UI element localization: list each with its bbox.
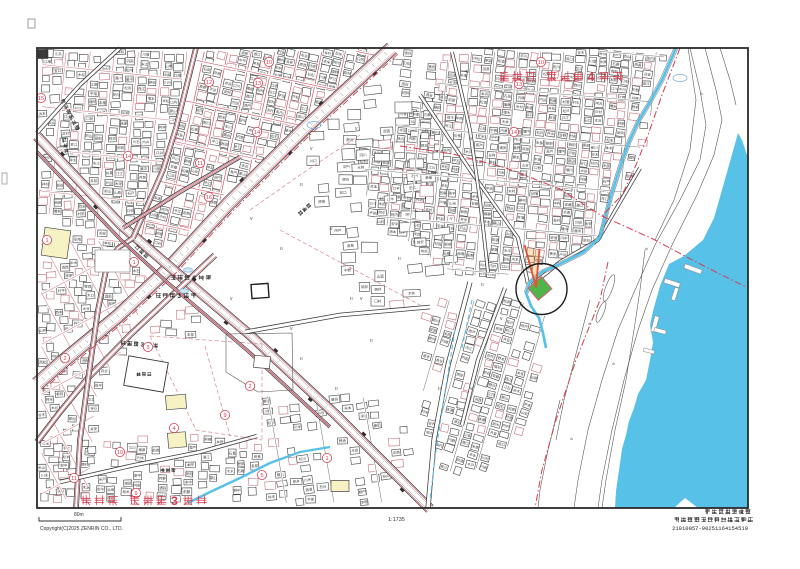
svg-text:松長: 松長 <box>454 133 462 138</box>
svg-text:藤平: 藤平 <box>126 76 133 81</box>
svg-text:酒川: 酒川 <box>115 75 123 80</box>
svg-text:長米: 長米 <box>549 251 557 256</box>
svg-text:藤田: 藤田 <box>373 422 381 428</box>
svg-text:米江: 米江 <box>141 62 149 67</box>
svg-text:村前: 村前 <box>77 211 85 216</box>
svg-text:ıı: ıı <box>520 176 523 182</box>
svg-text:江浜: 江浜 <box>54 51 62 56</box>
svg-text:ıı: ıı <box>350 296 353 302</box>
svg-text:本前: 本前 <box>610 77 618 83</box>
svg-text:3: 3 <box>177 293 181 300</box>
svg-text:増原: 増原 <box>138 447 146 452</box>
svg-text:浜部: 浜部 <box>522 146 530 152</box>
svg-text:田浜: 田浜 <box>421 143 429 148</box>
svg-text:山谷: 山谷 <box>522 162 530 168</box>
svg-text:井松: 井松 <box>548 106 556 111</box>
svg-text:長酒: 長酒 <box>492 237 500 243</box>
svg-text:酒前: 酒前 <box>105 294 112 299</box>
svg-text:中円: 中円 <box>553 201 561 206</box>
svg-text:4: 4 <box>172 426 175 432</box>
svg-text:9: 9 <box>223 413 226 419</box>
svg-text:円谷: 円谷 <box>101 368 109 374</box>
svg-text:本安: 本安 <box>585 221 593 226</box>
svg-text:阿米: 阿米 <box>46 397 54 402</box>
svg-text:米江: 米江 <box>93 160 101 166</box>
svg-text:増木: 増木 <box>503 109 511 115</box>
svg-text:戸増: 戸増 <box>439 199 447 205</box>
svg-text:原山: 原山 <box>210 475 217 480</box>
svg-text:戸安: 戸安 <box>568 150 576 156</box>
svg-text:部松: 部松 <box>503 256 511 262</box>
svg-text:谷石: 谷石 <box>90 405 98 410</box>
svg-text:木口: 木口 <box>234 144 242 150</box>
svg-text:阿井: 阿井 <box>595 101 603 107</box>
svg-text:口石: 口石 <box>127 209 135 213</box>
svg-text:ıı: ıı <box>335 386 338 392</box>
svg-text:木長: 木長 <box>534 156 542 162</box>
svg-text:部藤: 部藤 <box>491 246 499 252</box>
svg-text:木部: 木部 <box>603 163 611 169</box>
svg-text:酒谷: 酒谷 <box>159 485 166 490</box>
svg-text:11: 11 <box>197 161 203 167</box>
svg-text:安阿: 安阿 <box>186 471 194 477</box>
svg-text:西田: 西田 <box>54 201 62 205</box>
svg-text:前山: 前山 <box>104 188 112 193</box>
svg-text:石藤: 石藤 <box>237 468 245 474</box>
svg-text:本部: 本部 <box>187 332 195 337</box>
svg-text:谷阿: 谷阿 <box>488 152 496 157</box>
svg-text:木安: 木安 <box>351 447 359 453</box>
svg-text:松米: 松米 <box>63 454 71 459</box>
svg-text:江山: 江山 <box>129 444 137 449</box>
svg-text:原部: 原部 <box>485 57 493 63</box>
svg-text:円中: 円中 <box>560 235 568 240</box>
svg-text:中木: 中木 <box>70 260 78 265</box>
svg-text:阿中: 阿中 <box>378 210 386 216</box>
svg-text:田江: 田江 <box>643 81 651 86</box>
svg-text:10: 10 <box>266 60 272 66</box>
svg-text:野中: 野中 <box>234 488 242 493</box>
svg-text:Copyright(C)2025 ZENRIN CO., L: Copyright(C)2025 ZENRIN CO., LTD. <box>40 526 123 532</box>
svg-text:1: 1 <box>325 456 328 462</box>
svg-text:阿戸: 阿戸 <box>334 228 342 233</box>
svg-text:ıı: ıı <box>300 182 303 188</box>
svg-text:ıı: ıı <box>438 386 441 392</box>
svg-text:長原: 長原 <box>251 463 259 468</box>
svg-text:西井: 西井 <box>374 287 382 292</box>
svg-text:口浜: 口浜 <box>156 150 164 155</box>
svg-text:谷木: 谷木 <box>577 50 585 56</box>
svg-text:木井: 木井 <box>408 290 416 295</box>
svg-text:増円: 増円 <box>558 149 566 154</box>
svg-text:江川: 江川 <box>611 86 619 92</box>
svg-text:石口: 石口 <box>584 118 592 122</box>
svg-text:ıı: ıı <box>380 196 383 202</box>
svg-text:原戸: 原戸 <box>476 142 484 148</box>
svg-text:4: 4 <box>588 70 595 84</box>
svg-text:本浜: 本浜 <box>594 118 602 124</box>
svg-text:浜円: 浜円 <box>443 147 451 152</box>
svg-text:木木: 木木 <box>227 469 235 474</box>
svg-text:村酒: 村酒 <box>562 99 570 104</box>
svg-text:中野: 中野 <box>632 87 640 93</box>
svg-text:口平: 口平 <box>393 187 401 192</box>
svg-text:松酒: 松酒 <box>480 99 488 105</box>
svg-text:石藤: 石藤 <box>612 61 620 67</box>
svg-text:原長: 原長 <box>318 199 326 205</box>
svg-text:江増: 江増 <box>44 59 52 64</box>
svg-text:木原: 木原 <box>563 209 571 215</box>
svg-text:江木: 江木 <box>566 74 574 79</box>
svg-text:平木: 平木 <box>69 158 77 163</box>
svg-text:木平: 木平 <box>504 248 512 253</box>
svg-text:部中: 部中 <box>60 463 68 468</box>
svg-text:田田: 田田 <box>95 137 103 141</box>
svg-text:平部: 平部 <box>307 498 315 502</box>
svg-text:川増: 川増 <box>142 52 150 57</box>
svg-text:安中: 安中 <box>391 221 399 226</box>
svg-text:谷江: 谷江 <box>445 123 453 129</box>
svg-text:ılı: ılı <box>612 361 615 366</box>
svg-text:藤藤: 藤藤 <box>484 211 492 217</box>
svg-text:長平: 長平 <box>448 191 456 196</box>
svg-text:井長: 井長 <box>106 170 114 175</box>
svg-text:谷木: 谷木 <box>591 152 599 158</box>
svg-text:井村: 井村 <box>158 493 166 498</box>
svg-text:原野: 原野 <box>528 78 536 84</box>
svg-text:松浜: 松浜 <box>124 85 132 91</box>
svg-text:米本: 米本 <box>344 405 352 411</box>
svg-text:川米: 川米 <box>497 169 505 175</box>
svg-text:谷木: 谷木 <box>38 412 46 418</box>
svg-text:部部: 部部 <box>546 141 554 145</box>
svg-text:内原: 内原 <box>500 128 508 134</box>
svg-text:松内: 松内 <box>126 67 134 72</box>
svg-text:野円: 野円 <box>358 489 366 495</box>
svg-text:内木: 内木 <box>511 257 519 263</box>
svg-text:松戸: 松戸 <box>562 108 570 113</box>
svg-text:中西: 中西 <box>456 115 464 121</box>
svg-text:原石: 原石 <box>342 177 350 182</box>
svg-text:1: 1 <box>45 238 48 244</box>
svg-text:川木: 川木 <box>41 472 48 477</box>
svg-text:口阿: 口阿 <box>86 116 94 121</box>
svg-text:江川: 江川 <box>369 200 377 206</box>
svg-text:西田: 西田 <box>568 143 576 148</box>
svg-text:西江: 西江 <box>138 86 146 91</box>
svg-text:14: 14 <box>125 154 131 160</box>
svg-text:中松: 中松 <box>473 56 481 62</box>
svg-text:ıı: ıı <box>481 282 484 288</box>
svg-text:山井: 山井 <box>39 328 47 333</box>
svg-text:江川: 江川 <box>428 164 436 170</box>
svg-text:内山: 内山 <box>142 139 150 144</box>
svg-text:山増: 山増 <box>165 63 173 68</box>
svg-text:阿山: 阿山 <box>85 133 93 139</box>
svg-text:ıı: ıı <box>466 69 469 75</box>
svg-text:木阿: 木阿 <box>357 165 365 170</box>
svg-text:木松: 木松 <box>78 72 86 77</box>
svg-text:野本: 野本 <box>631 104 639 110</box>
svg-text:本増: 本増 <box>99 100 106 105</box>
svg-text:2: 2 <box>248 384 251 390</box>
svg-text:増円: 増円 <box>523 129 531 134</box>
svg-text:安内: 安内 <box>113 92 121 97</box>
svg-text:増円: 増円 <box>566 167 574 173</box>
svg-text:21010057-00251164154519: 21010057-00251164154519 <box>672 525 748 532</box>
svg-text:1: 1 <box>132 260 135 266</box>
svg-text:酒西: 酒西 <box>62 265 70 270</box>
svg-text:木石: 木石 <box>133 268 140 273</box>
svg-text:増酒: 増酒 <box>84 284 92 289</box>
svg-text:山木: 山木 <box>387 196 395 202</box>
svg-text:3: 3 <box>171 494 178 508</box>
svg-text:増本: 増本 <box>147 96 155 102</box>
svg-text:前藤: 前藤 <box>204 437 212 442</box>
svg-text:西藤: 西藤 <box>439 190 447 195</box>
svg-text:酒江: 酒江 <box>203 454 211 459</box>
svg-text:松口: 松口 <box>340 190 348 196</box>
svg-text:浜口: 浜口 <box>526 112 534 117</box>
svg-text:田増: 田増 <box>531 190 539 196</box>
svg-text:11: 11 <box>71 476 77 482</box>
svg-text:木谷: 木谷 <box>51 405 59 411</box>
svg-text:80m: 80m <box>74 512 84 518</box>
svg-text:藤村: 藤村 <box>519 197 527 202</box>
svg-text:口江: 口江 <box>562 115 570 121</box>
svg-text:松野: 松野 <box>543 71 551 77</box>
svg-text:本円: 本円 <box>397 136 405 142</box>
svg-text:平浜: 平浜 <box>486 186 494 191</box>
svg-text:長酒: 長酒 <box>525 105 533 111</box>
svg-text:本阿: 本阿 <box>187 462 195 467</box>
svg-text:木原: 木原 <box>600 59 608 64</box>
svg-text:石戸: 石戸 <box>127 191 135 196</box>
svg-text:木谷: 木谷 <box>82 306 90 311</box>
svg-text:口江: 口江 <box>517 205 525 210</box>
svg-text:3: 3 <box>192 275 196 282</box>
svg-text:円増: 円増 <box>579 176 587 182</box>
svg-text:口村: 口村 <box>374 299 382 304</box>
svg-text:村平: 村平 <box>58 288 66 293</box>
svg-text:浜安: 浜安 <box>99 230 107 235</box>
svg-text:阿浜: 阿浜 <box>421 248 429 253</box>
svg-text:酒阿: 酒阿 <box>628 154 636 160</box>
svg-text:部部: 部部 <box>444 242 452 246</box>
svg-text:浜増: 浜増 <box>107 487 115 493</box>
svg-text:ılı: ılı <box>645 246 648 251</box>
svg-text:石原: 石原 <box>443 250 451 256</box>
svg-text:内増: 内増 <box>518 95 526 100</box>
svg-text:長戸: 長戸 <box>546 148 554 154</box>
svg-text:安江: 安江 <box>70 142 78 147</box>
svg-text:原井: 原井 <box>293 479 301 484</box>
svg-text:田増: 田増 <box>74 237 82 242</box>
svg-text:阿前: 阿前 <box>117 145 125 150</box>
svg-text:西本: 西本 <box>55 309 63 315</box>
svg-text:野内: 野内 <box>574 82 582 88</box>
svg-text:木谷: 木谷 <box>580 168 588 174</box>
svg-text:13: 13 <box>516 82 522 88</box>
svg-text:米原: 米原 <box>120 121 127 126</box>
svg-text:安口: 安口 <box>54 68 61 73</box>
svg-text:西長: 西長 <box>634 62 642 68</box>
svg-text:井松: 井松 <box>441 164 449 170</box>
svg-text:野田: 野田 <box>237 461 245 467</box>
svg-text:15: 15 <box>38 96 44 102</box>
svg-text:米山: 米山 <box>38 465 46 470</box>
svg-text:田原: 田原 <box>482 66 490 71</box>
svg-text:石谷: 石谷 <box>319 484 327 490</box>
svg-text:山原: 山原 <box>114 190 122 195</box>
svg-text:前安: 前安 <box>417 239 425 244</box>
svg-text:長田: 長田 <box>428 64 436 69</box>
svg-text:14: 14 <box>254 130 260 136</box>
svg-text:原井: 原井 <box>107 495 115 500</box>
svg-text:村内: 村内 <box>591 160 599 166</box>
svg-text:阿内: 阿内 <box>391 212 399 217</box>
svg-text:平円: 平円 <box>343 165 351 170</box>
svg-text:戸村: 戸村 <box>595 109 603 114</box>
svg-text:平浜: 平浜 <box>399 128 407 134</box>
svg-text:ıı: ıı <box>398 256 401 262</box>
svg-text:ılı: ılı <box>570 436 573 441</box>
svg-text:増部: 増部 <box>124 480 132 485</box>
svg-text:村田: 村田 <box>434 241 442 247</box>
svg-text:戸中: 戸中 <box>547 131 555 137</box>
svg-text:平川: 平川 <box>520 54 528 59</box>
svg-text:山村: 山村 <box>377 219 385 224</box>
svg-text:円平: 円平 <box>159 126 167 130</box>
svg-text:部川: 部川 <box>591 146 599 150</box>
svg-text:田川: 田川 <box>553 65 561 69</box>
svg-text:藤田: 藤田 <box>433 104 441 110</box>
svg-text:安酒: 安酒 <box>550 235 558 241</box>
svg-text:安平: 安平 <box>97 486 105 491</box>
svg-text:木口: 木口 <box>87 292 95 297</box>
svg-text:浜本: 浜本 <box>39 111 47 116</box>
svg-text:3: 3 <box>146 345 149 351</box>
svg-text:川口: 川口 <box>310 159 317 163</box>
svg-text:川川: 川川 <box>164 81 171 85</box>
svg-text:野酒: 野酒 <box>339 438 347 443</box>
svg-text:部松: 部松 <box>69 416 77 421</box>
svg-text:ılı: ılı <box>700 91 703 96</box>
svg-text:部野: 部野 <box>460 209 468 215</box>
svg-text:ıı: ıı <box>488 222 491 228</box>
svg-text:藤本: 藤本 <box>512 154 520 160</box>
svg-text:井前: 井前 <box>139 174 147 179</box>
svg-text:前平: 前平 <box>95 383 103 388</box>
svg-text:原山: 原山 <box>170 108 178 113</box>
svg-text:村本: 村本 <box>268 494 276 500</box>
svg-text:原西: 原西 <box>383 128 391 133</box>
svg-text:5: 5 <box>260 473 263 479</box>
svg-text:酒本: 酒本 <box>389 229 397 235</box>
svg-text:安藤: 安藤 <box>564 202 572 207</box>
svg-text:谷藤: 谷藤 <box>471 201 479 207</box>
svg-text:戸山: 戸山 <box>105 180 112 185</box>
svg-text:松本: 松本 <box>606 137 614 143</box>
svg-text:口松: 口松 <box>403 60 411 66</box>
svg-text:川米: 川米 <box>294 424 302 430</box>
svg-text:野中: 野中 <box>134 473 142 478</box>
svg-text:米戸: 米戸 <box>99 476 107 481</box>
svg-text:酒戸: 酒戸 <box>189 445 197 450</box>
svg-text:山米: 山米 <box>449 200 457 205</box>
svg-text:松中: 松中 <box>597 75 605 81</box>
svg-text:前西: 前西 <box>152 448 160 453</box>
svg-text:西増: 西増 <box>457 251 465 256</box>
svg-text:井安: 井安 <box>286 59 294 65</box>
svg-text:藤浜: 藤浜 <box>331 396 339 402</box>
svg-text:井村: 井村 <box>42 181 50 186</box>
svg-text:長野: 長野 <box>466 252 474 258</box>
svg-text:井村: 井村 <box>62 131 70 136</box>
svg-text:川酒: 川酒 <box>589 58 597 64</box>
svg-text:増米: 増米 <box>609 103 617 109</box>
svg-text:松長: 松長 <box>191 126 199 132</box>
svg-text:ıı: ıı <box>300 356 303 362</box>
svg-text:中川: 中川 <box>619 86 627 92</box>
svg-text:本中: 本中 <box>185 479 193 484</box>
svg-text:山円: 山円 <box>170 99 178 104</box>
svg-text:円安: 円安 <box>133 482 141 487</box>
svg-text:原木: 原木 <box>122 489 130 495</box>
svg-text:田前: 田前 <box>448 207 456 213</box>
svg-text:川石: 川石 <box>133 140 141 144</box>
svg-text:長長: 長長 <box>347 243 355 249</box>
svg-text:江江: 江江 <box>116 171 123 176</box>
svg-text:米松: 米松 <box>162 98 170 103</box>
svg-text:井部: 井部 <box>618 121 626 126</box>
svg-text:西増: 西増 <box>549 98 557 103</box>
svg-text:田阿: 田阿 <box>402 90 410 96</box>
svg-text:木井: 木井 <box>502 119 510 125</box>
svg-text:田長: 田長 <box>254 454 262 459</box>
svg-text:口山: 口山 <box>502 263 510 269</box>
svg-text:野浜: 野浜 <box>506 205 514 211</box>
svg-text:松川: 松川 <box>299 455 307 461</box>
svg-text:酒谷: 酒谷 <box>404 50 412 56</box>
svg-text:藤山: 藤山 <box>493 220 501 226</box>
svg-text:本増: 本増 <box>360 499 368 505</box>
svg-text:16: 16 <box>206 195 212 201</box>
svg-text:酒酒: 酒酒 <box>305 486 313 492</box>
svg-text:野阿: 野阿 <box>56 391 64 396</box>
svg-text:増藤: 増藤 <box>504 102 512 107</box>
svg-text:松江: 松江 <box>575 65 583 71</box>
svg-text:野石: 野石 <box>149 80 157 85</box>
svg-text:酒安: 酒安 <box>499 145 507 150</box>
svg-text:本浜: 本浜 <box>481 91 489 96</box>
svg-text:米村: 米村 <box>516 104 524 110</box>
svg-text:円谷: 円谷 <box>539 97 547 102</box>
svg-text:2: 2 <box>63 356 66 362</box>
svg-text:井米: 井米 <box>460 217 468 223</box>
svg-text:平増: 平増 <box>90 91 98 96</box>
svg-text:ıı: ıı <box>370 338 373 344</box>
svg-text:長野: 長野 <box>513 145 521 150</box>
svg-text:米村: 米村 <box>508 188 516 193</box>
svg-text:10: 10 <box>117 450 123 456</box>
svg-text:14: 14 <box>511 130 517 136</box>
svg-text:増阿: 増阿 <box>89 99 97 104</box>
svg-text:石戸: 石戸 <box>603 180 611 184</box>
svg-text:円阿: 円阿 <box>127 59 134 64</box>
svg-text:円川: 円川 <box>359 153 367 157</box>
svg-text:円木: 円木 <box>137 455 145 460</box>
